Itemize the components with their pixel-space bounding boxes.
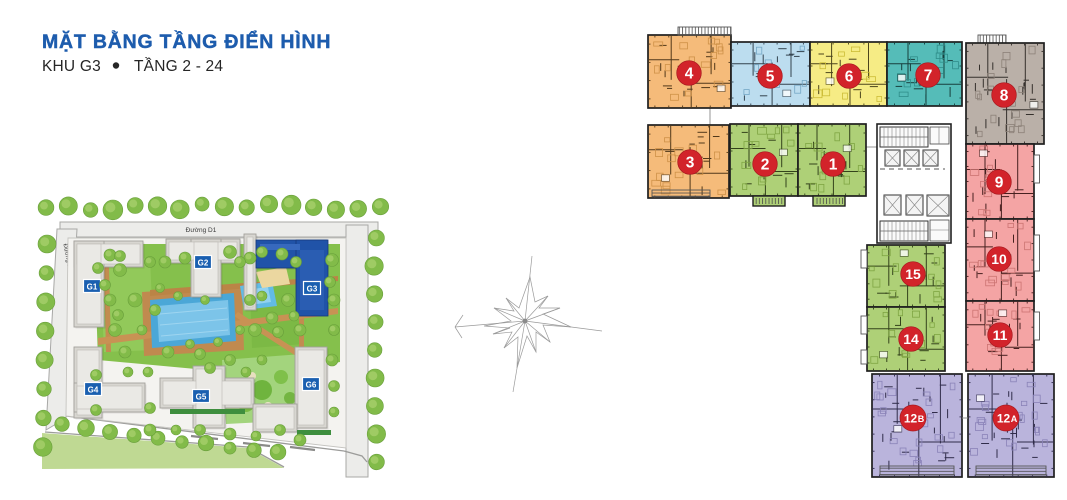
svg-text:G6: G6 [306, 381, 317, 390]
svg-text:4: 4 [685, 65, 694, 82]
svg-text:3: 3 [686, 154, 695, 171]
svg-text:Đường D1: Đường D1 [186, 227, 217, 234]
svg-text:KHU G3: KHU G3 [42, 58, 101, 75]
svg-text:11: 11 [993, 327, 1008, 343]
svg-text:5: 5 [766, 68, 775, 85]
svg-text:MẶT BẰNG TẦNG ĐIỂN HÌNH: MẶT BẰNG TẦNG ĐIỂN HÌNH [42, 29, 331, 53]
svg-text:G2: G2 [198, 259, 209, 268]
svg-text:6: 6 [845, 68, 854, 85]
svg-text:G4: G4 [88, 386, 99, 395]
svg-text:12: 12 [904, 412, 918, 426]
svg-text:14: 14 [903, 331, 919, 347]
svg-text:7: 7 [924, 67, 933, 84]
svg-text:G1: G1 [87, 283, 98, 292]
svg-text:TẦNG 2 - 24: TẦNG 2 - 24 [134, 58, 223, 75]
svg-text:G3: G3 [307, 285, 318, 294]
svg-text:10: 10 [991, 251, 1007, 267]
svg-text:B: B [918, 414, 925, 424]
svg-text:A: A [1011, 414, 1018, 424]
svg-text:15: 15 [905, 266, 921, 282]
svg-text:1: 1 [829, 156, 838, 173]
svg-text:8: 8 [1000, 87, 1009, 104]
svg-text:2: 2 [761, 156, 770, 173]
svg-text:G5: G5 [196, 393, 207, 402]
svg-text:12: 12 [997, 412, 1011, 426]
svg-text:9: 9 [995, 174, 1004, 191]
